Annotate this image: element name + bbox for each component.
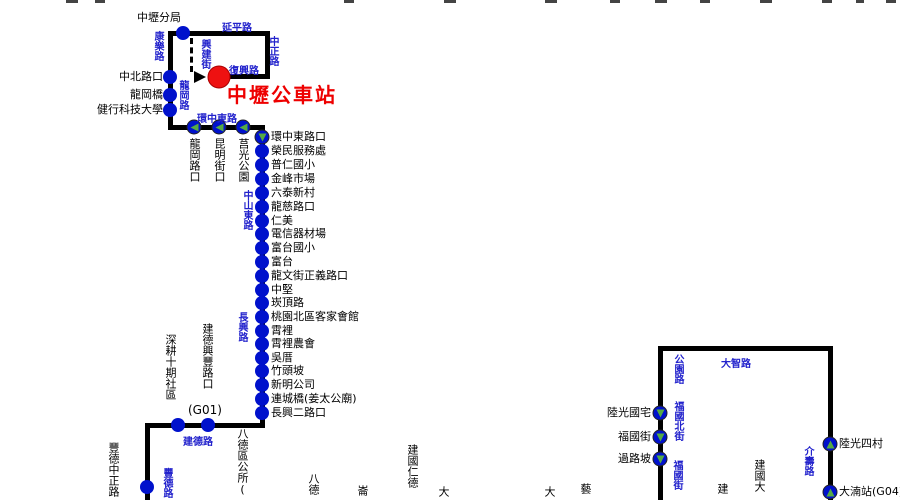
up-arrow-icon [826, 488, 834, 496]
left-arrow-icon [239, 123, 247, 131]
stop-label: 仁美 [271, 215, 293, 227]
stop-label-cut: 崙 [356, 485, 369, 496]
stop-label: 竹頭坡 [271, 365, 304, 377]
stop-label-cut: 建國大 [753, 459, 766, 492]
stop-dot-directional [823, 485, 838, 500]
cropped-text-fragment [760, 0, 772, 3]
stop-label: 崁頂路 [271, 297, 304, 309]
stop-dot [255, 310, 269, 324]
stop-label: 建德興豐路口 [201, 323, 214, 389]
stop-dot [255, 351, 269, 365]
road-label-jieshou: 介壽路 [801, 446, 813, 476]
stop-label: 中壢分局 [137, 12, 181, 24]
road-label-dazhi: 大智路 [721, 355, 751, 370]
stop-label: 新明公司 [271, 379, 315, 391]
stop-dot [255, 392, 269, 406]
stop-dot-directional [653, 406, 668, 421]
cropped-text-fragment [655, 0, 667, 3]
road-label-fengde: 豐德路 [160, 468, 172, 498]
stop-dot [255, 296, 269, 310]
stop-label: 福國街 [618, 431, 651, 443]
stop-label: 陸光四村 [839, 438, 883, 450]
stop-label-cut: 大 [543, 486, 556, 497]
stop-dot [255, 227, 269, 241]
stop-label: 霄裡 [271, 325, 293, 337]
stop-label: 中北路口 [119, 71, 163, 83]
stop-label: 莒光公園 [237, 138, 250, 182]
stop-code-label: (G01) [188, 403, 222, 417]
road-label-longgang: 龍岡路 [176, 80, 188, 110]
road-label-kangle: 康樂路 [151, 31, 163, 61]
stop-label-cut: 建國仁德 [406, 444, 419, 488]
stop-label: 深耕十期社區 [164, 334, 177, 400]
stop-label: 吳厝 [271, 352, 293, 364]
stop-dot [255, 269, 269, 283]
stop-label: 連城橋(姜太公廟) [271, 393, 357, 405]
stop-label: 普仁國小 [271, 159, 315, 171]
stop-dot [255, 158, 269, 172]
stop-label: 昆明街口 [213, 138, 226, 182]
road-label-fuxing: 復興路 [229, 62, 259, 77]
stop-label: 富台國小 [271, 242, 315, 254]
stop-label: 環中東路口 [271, 131, 326, 143]
stop-dot [255, 255, 269, 269]
stop-label: 陸光國宅 [607, 407, 651, 419]
cropped-text-fragment [95, 0, 105, 3]
stop-label: 健行科技大學 [97, 104, 163, 116]
cropped-text-fragment [610, 0, 620, 3]
road-label-jiande: 建德路 [183, 433, 213, 448]
direction-arrowhead-icon [194, 71, 206, 83]
stop-dot [163, 70, 177, 84]
route-line-dazhi-rd [658, 346, 833, 351]
stop-dot-directional [823, 437, 838, 452]
stop-label: 過路坡 [618, 453, 651, 465]
cropped-text-fragment [66, 0, 78, 3]
stop-dot [255, 324, 269, 338]
stop-label: 桃園北區客家會館 [271, 311, 359, 323]
stop-dot [255, 406, 269, 420]
stop-dot [255, 200, 269, 214]
cropped-text-fragment [856, 0, 864, 3]
stop-label: 金峰市場 [271, 173, 315, 185]
stop-label: 龍岡路口 [188, 138, 201, 182]
stop-label-cut: 八德區公所( [236, 428, 249, 496]
road-label-changxing: 長興路 [235, 312, 247, 342]
cropped-text-fragment [444, 0, 456, 3]
down-arrow-icon [656, 455, 664, 463]
down-arrow-icon [656, 433, 664, 441]
stop-label: 電信器材場 [271, 228, 326, 240]
stop-label-cut: 大 [437, 486, 450, 497]
cropped-text-fragment [545, 0, 557, 3]
stop-dot [255, 241, 269, 255]
route-dashed-xingjian-st [190, 38, 193, 72]
stop-label: 龍慈路口 [271, 201, 315, 213]
road-label-xingjian: 興建街 [198, 39, 210, 69]
cropped-text-fragment [886, 0, 896, 3]
up-arrow-icon [826, 440, 834, 448]
terminal-station-label: 中壢公車站 [227, 79, 337, 108]
road-label-zhongshandong: 中山東路 [240, 190, 252, 230]
stop-dot [255, 378, 269, 392]
stop-label: 富台 [271, 256, 293, 268]
stop-dot [255, 186, 269, 200]
stop-dot-directional [653, 452, 668, 467]
stop-label: 龍岡橋 [130, 89, 163, 101]
route-line-jieshou-rd [828, 346, 833, 500]
cropped-text-fragment [700, 0, 710, 3]
stop-label: 長興二路口 [271, 407, 326, 419]
stop-dot [255, 144, 269, 158]
stop-label: 豐德中正路 [107, 442, 120, 497]
road-label-yanping: 延平路 [222, 19, 252, 34]
stop-label: 中堅 [271, 284, 293, 296]
cropped-text-fragment [344, 0, 354, 3]
stop-label: 六泰新村 [271, 187, 315, 199]
stop-dot [255, 364, 269, 378]
stop-dot-directional [255, 130, 270, 145]
stop-label-cut: 藝 [579, 483, 592, 494]
road-label-fuguobei: 福國北街 [671, 401, 683, 441]
stop-dot [255, 337, 269, 351]
stop-dot [176, 26, 190, 40]
down-arrow-icon [656, 409, 664, 417]
stop-dot [255, 283, 269, 297]
cropped-text-fragment [822, 0, 832, 3]
stop-label-cut: 建 [716, 483, 729, 494]
stop-dot [255, 214, 269, 228]
stop-label: 榮民服務處 [271, 145, 326, 157]
stop-dot [163, 103, 177, 117]
stop-dot [201, 418, 215, 432]
road-label-fuguo: 福國街 [670, 460, 682, 490]
route-line-gongyuan-fuguo-rd [658, 346, 663, 500]
road-label-huanzhongdong: 環中東路 [197, 110, 237, 125]
stop-label-cut: 八德 [307, 473, 320, 495]
stop-label: 龍文街正義路口 [271, 270, 348, 282]
stop-dot [255, 172, 269, 186]
stop-label: 霄裡農會 [271, 338, 315, 350]
down-arrow-icon [258, 133, 266, 141]
stop-label: 大湳站(G04) [839, 486, 900, 498]
stop-dot [163, 88, 177, 102]
stop-dot [171, 418, 185, 432]
stop-dot-directional [236, 120, 251, 135]
stop-dot [140, 480, 154, 494]
road-label-gongyuan: 公園路 [671, 354, 683, 384]
road-label-zhongzheng: 中正路 [266, 36, 278, 66]
stop-dot-directional [653, 430, 668, 445]
bus-route-map: { "terminal": { "label": "中壢公車站" }, "col… [0, 0, 900, 500]
